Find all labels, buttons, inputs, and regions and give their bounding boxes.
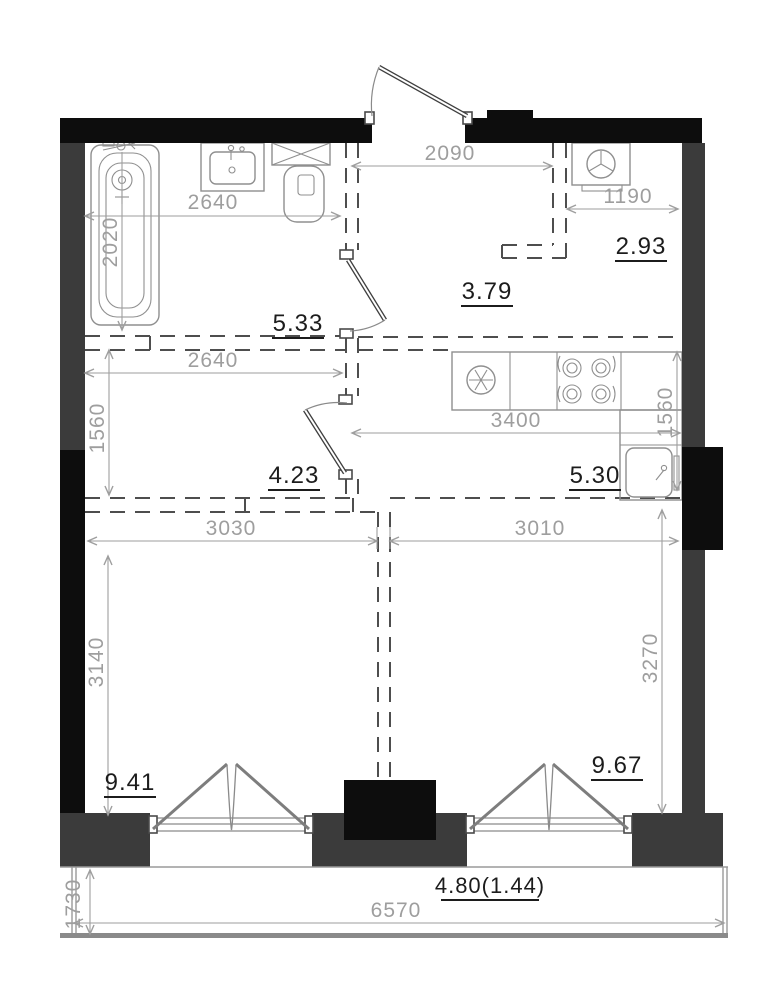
room-label-room-left: 9.41 bbox=[105, 769, 156, 796]
room-label-bathroom: 5.33 bbox=[273, 310, 324, 337]
wall-bottom-left bbox=[60, 813, 150, 867]
dim-room-right-width: 3010 bbox=[515, 517, 566, 540]
wall-bottom-right bbox=[632, 813, 723, 867]
wall-top-tick bbox=[487, 110, 533, 118]
balcony-parapet bbox=[60, 933, 728, 938]
dim-kitchen-depth: 1560 bbox=[654, 387, 677, 438]
wall-left-upper bbox=[60, 143, 85, 450]
dim-kitchen-width: 3400 bbox=[491, 409, 542, 432]
dim-balcony-width: 6570 bbox=[371, 899, 422, 922]
room-label-hallway: 3.79 bbox=[462, 278, 513, 305]
dim-corridor-depth: 1560 bbox=[86, 403, 109, 454]
floor-plan-page: 2640 2090 1190 2640 3400 3030 3010 6570 … bbox=[0, 0, 771, 1000]
wall-right-upper bbox=[682, 143, 705, 447]
dim-corridor-width: 2640 bbox=[188, 349, 239, 372]
wall-top-left bbox=[60, 118, 372, 143]
wall-right-lower bbox=[682, 550, 705, 813]
dim-balcony-depth: 1730 bbox=[62, 879, 85, 930]
room-label-wardrobe: 2.93 bbox=[616, 233, 667, 260]
dim-wardrobe-width: 1190 bbox=[603, 185, 652, 208]
dim-bath-depth: 2020 bbox=[99, 217, 122, 268]
wall-right-black-section bbox=[682, 447, 723, 550]
room-label-room-right: 9.67 bbox=[592, 752, 643, 779]
dim-entry-width: 2090 bbox=[425, 142, 476, 165]
floor-plan-drawing: 2640 2090 1190 2640 3400 3030 3010 6570 … bbox=[0, 0, 771, 1000]
dim-room-right-depth: 3270 bbox=[639, 633, 662, 684]
wall-left-lower bbox=[60, 450, 85, 813]
room-label-corridor: 4.23 bbox=[269, 462, 320, 489]
room-label-balcony: 4.80(1.44) bbox=[435, 873, 545, 898]
shaft-block bbox=[344, 780, 436, 840]
dim-room-left-width: 3030 bbox=[206, 517, 257, 540]
dim-room-left-depth: 3140 bbox=[85, 637, 108, 688]
wall-top-right bbox=[465, 118, 702, 143]
dim-bath-width: 2640 bbox=[188, 191, 239, 214]
room-label-kitchen: 5.30 bbox=[570, 462, 621, 489]
